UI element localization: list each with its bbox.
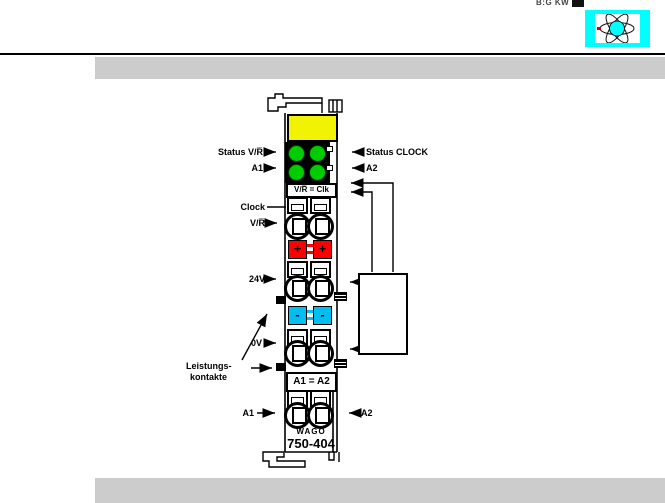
- label-leistungs: Leistungs-: [186, 361, 232, 371]
- clamp-opening-24v-2: [307, 275, 334, 302]
- plus-rail-link: [307, 244, 313, 247]
- power-contact-right-upper: [334, 292, 347, 301]
- latch-outline: [268, 94, 342, 113]
- led-a1: [288, 164, 305, 181]
- brand-text: WAGO: [285, 427, 337, 436]
- label-24v: 24V: [237, 274, 265, 284]
- label-status-vr: Status V/R̅: [200, 147, 263, 157]
- minus-rail-cell: -: [288, 306, 307, 325]
- led-block-tab: [326, 165, 333, 171]
- minus-rail-link: [307, 310, 313, 313]
- plus-rail-cell: +: [313, 240, 332, 259]
- marking-field: [287, 114, 338, 142]
- mounting-foot-outline: [263, 452, 339, 467]
- led-a2: [309, 164, 326, 181]
- part-number: 750-404: [283, 436, 339, 451]
- minus-rail-link: [307, 317, 313, 320]
- power-contact-left-lower: [276, 363, 286, 371]
- label-status-clock: Status CLOCK: [366, 147, 428, 157]
- arrow-leistung-diagonal: [242, 314, 267, 360]
- label-a2-top: A2: [366, 163, 378, 173]
- label-a2-bottom: A2: [361, 408, 373, 418]
- terminal-slot: [287, 197, 308, 214]
- led-block-tab: [326, 146, 333, 152]
- plus-rail-cell: +: [288, 240, 307, 259]
- label-a1-top: A1: [225, 163, 263, 173]
- label-0v: 0V: [236, 338, 262, 348]
- led-status-vr: [288, 145, 305, 162]
- label-kontakte: kontakte: [190, 372, 227, 382]
- label-vr: V/R̅: [237, 218, 265, 228]
- minus-rail-cell: -: [313, 306, 332, 325]
- wire-vr: [351, 192, 372, 272]
- plus-rail-link: [307, 251, 313, 254]
- relay-field-a1-a2: A1 = A2: [286, 372, 337, 392]
- terminal-slot: [310, 197, 331, 214]
- manual-page: B:G KW: [0, 0, 665, 503]
- led-block: [285, 142, 330, 183]
- wiring-box: [358, 273, 408, 355]
- clamp-opening-vr: [307, 213, 334, 240]
- led-status-clock: [309, 145, 326, 162]
- clamp-opening-0v-2: [307, 340, 334, 367]
- display-field-vr-clk: V/R̅ = Clk: [286, 183, 337, 198]
- label-clock: Clock: [230, 202, 265, 212]
- power-contact-left-upper: [276, 296, 286, 304]
- power-contact-right-lower: [334, 359, 347, 368]
- clamp-opening-a2: [307, 402, 334, 429]
- label-a1-bottom: A1: [228, 408, 254, 418]
